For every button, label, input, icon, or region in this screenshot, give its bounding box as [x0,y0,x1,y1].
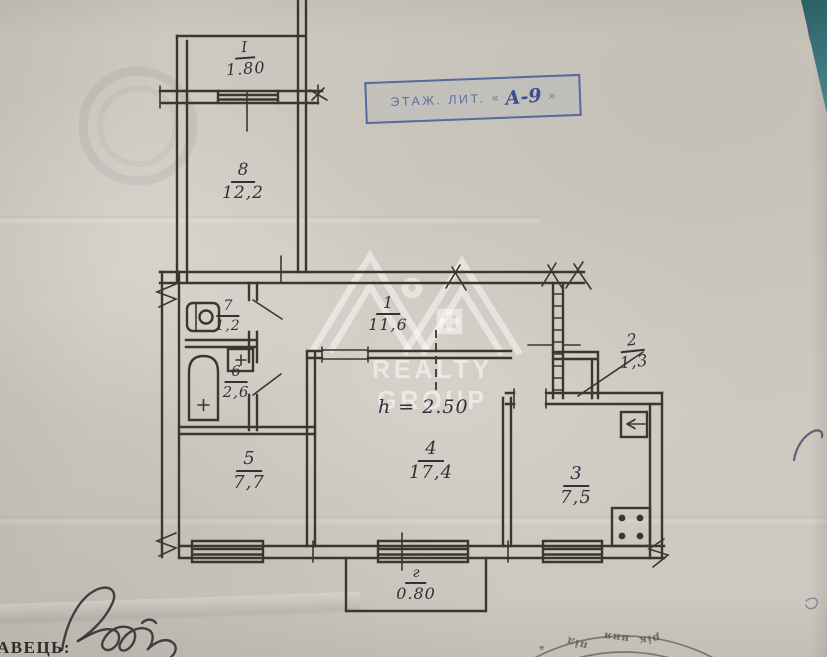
room-number: 1 [376,295,400,315]
room-number: 7 [217,299,240,317]
stove-icon [612,508,650,546]
room-area: 17,4 [409,462,453,482]
stamp-prefix-text: ЭТАЖ. ЛИТ. [390,92,485,110]
room-area: 1,2 [215,317,240,333]
balcony-area: 1.80 [225,58,266,79]
room-area: 1,3 [619,351,649,372]
room-number: 8 [231,162,256,183]
balcony-area: 0.80 [396,584,436,602]
label-room-8: 8 12,2 [222,162,264,202]
stamp-handwritten-value: А-9 [504,84,542,109]
room-number: 4 [418,440,443,462]
room-number: 3 [563,465,588,487]
windows [192,533,602,570]
room-number: 6 [224,364,248,383]
pen-marks [794,16,822,609]
label-room-2: 2 1,3 [617,331,649,372]
signature-scribble [62,588,176,657]
stamp-close-quote: » [547,88,556,103]
label-room-6: 6 2,6 [223,364,250,400]
bathtub-icon [189,356,218,420]
label-balcony-top: I 1.80 [224,39,266,79]
room-number: 2 [619,331,645,353]
room-area: 2,6 [223,383,250,400]
label-room-7: 7 1,2 [215,299,240,333]
label-balcony-bottom: г 0.80 [396,566,436,602]
watermark-house-logo [312,256,520,354]
label-room-5: 5 7,7 [233,450,265,492]
footer-label-fragment: АВЕЦЬ: [0,638,71,657]
room-area: 7,5 [560,487,592,507]
balcony-number: г [405,566,426,584]
label-room-4: 4 17,4 [409,440,453,482]
floor-lit-stamp: ЭТАЖ. ЛИТ. « А-9 » [364,74,581,124]
stamp-open-quote: « [491,91,500,106]
room-number: 5 [236,450,261,472]
closet-walls [553,352,598,398]
label-room-3: 3 7,5 [560,465,592,507]
vent-icon [621,412,647,437]
toilet-icon [187,303,219,331]
balcony-number: I [234,39,255,59]
ceiling-height-note: h = 2.50 [378,396,469,418]
room-area: 11,6 [368,315,408,333]
label-room-1: 1 11,6 [368,295,408,333]
scanned-floor-plan-page: REALTY GROUP [0,0,827,657]
room-area: 12,2 [222,183,264,202]
room-area: 7,7 [233,472,265,492]
